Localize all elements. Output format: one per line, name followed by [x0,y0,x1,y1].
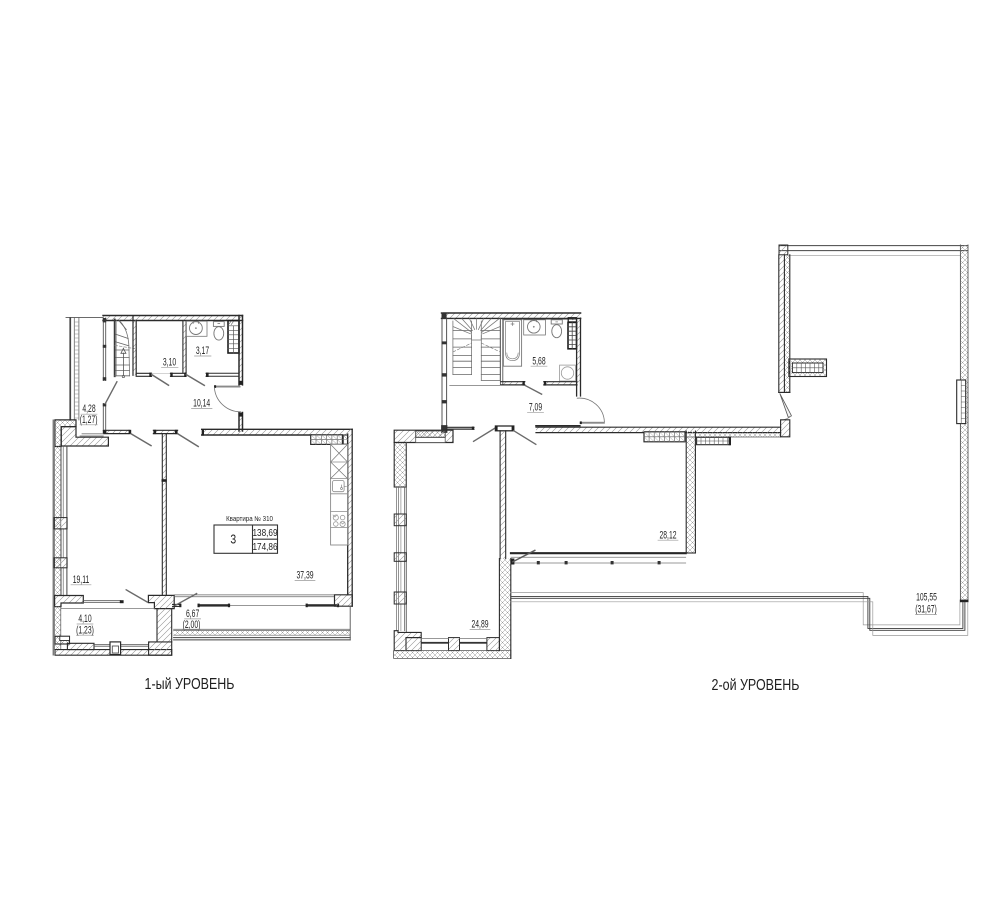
svg-text:3,17: 3,17 [196,345,209,357]
svg-text:174,86: 174,86 [252,540,277,552]
svg-text:7,09: 7,09 [529,401,542,413]
svg-text:3,10: 3,10 [163,356,176,368]
svg-text:(1,23): (1,23) [76,624,94,636]
svg-text:37,39: 37,39 [296,569,313,581]
svg-text:(2,00): (2,00) [183,618,201,630]
svg-text:138,69: 138,69 [252,526,277,538]
svg-text:Квартира № 310: Квартира № 310 [226,515,273,522]
svg-text:19,11: 19,11 [73,573,90,585]
svg-text:28,12: 28,12 [659,529,676,541]
svg-text:(1,27): (1,27) [80,413,98,425]
svg-text:3: 3 [230,533,236,547]
svg-text:1-ый УРОВЕНЬ: 1-ый УРОВЕНЬ [145,676,235,694]
svg-text:24,89: 24,89 [471,618,488,630]
svg-text:10,14: 10,14 [193,397,210,409]
svg-text:2-ой УРОВЕНЬ: 2-ой УРОВЕНЬ [712,677,800,695]
svg-text:4,10: 4,10 [78,612,91,624]
svg-text:(31,67): (31,67) [915,603,937,615]
svg-text:5,68: 5,68 [532,355,545,367]
svg-text:105,55: 105,55 [916,591,937,603]
